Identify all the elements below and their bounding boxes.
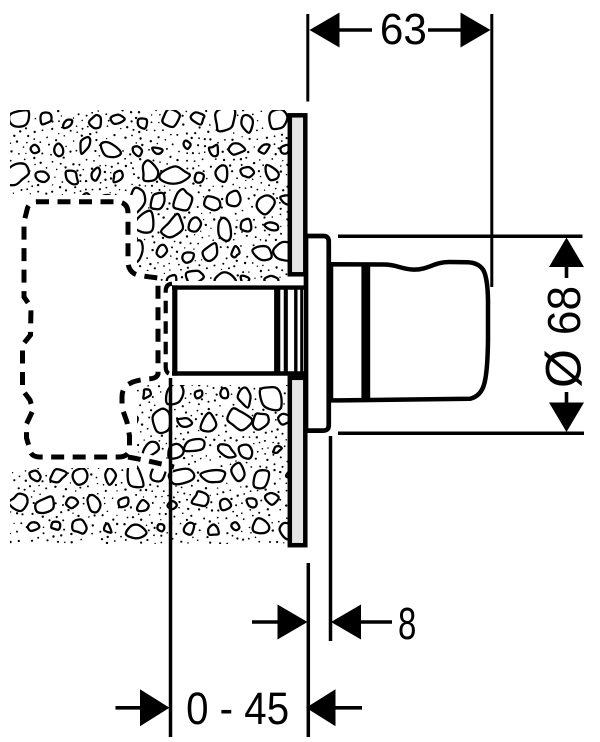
svg-text:63: 63 <box>380 5 427 54</box>
svg-text:68: 68 <box>538 286 590 335</box>
svg-text:8: 8 <box>398 599 416 649</box>
svg-text:0 - 45: 0 - 45 <box>186 684 289 735</box>
svg-text:Ø: Ø <box>536 349 592 388</box>
